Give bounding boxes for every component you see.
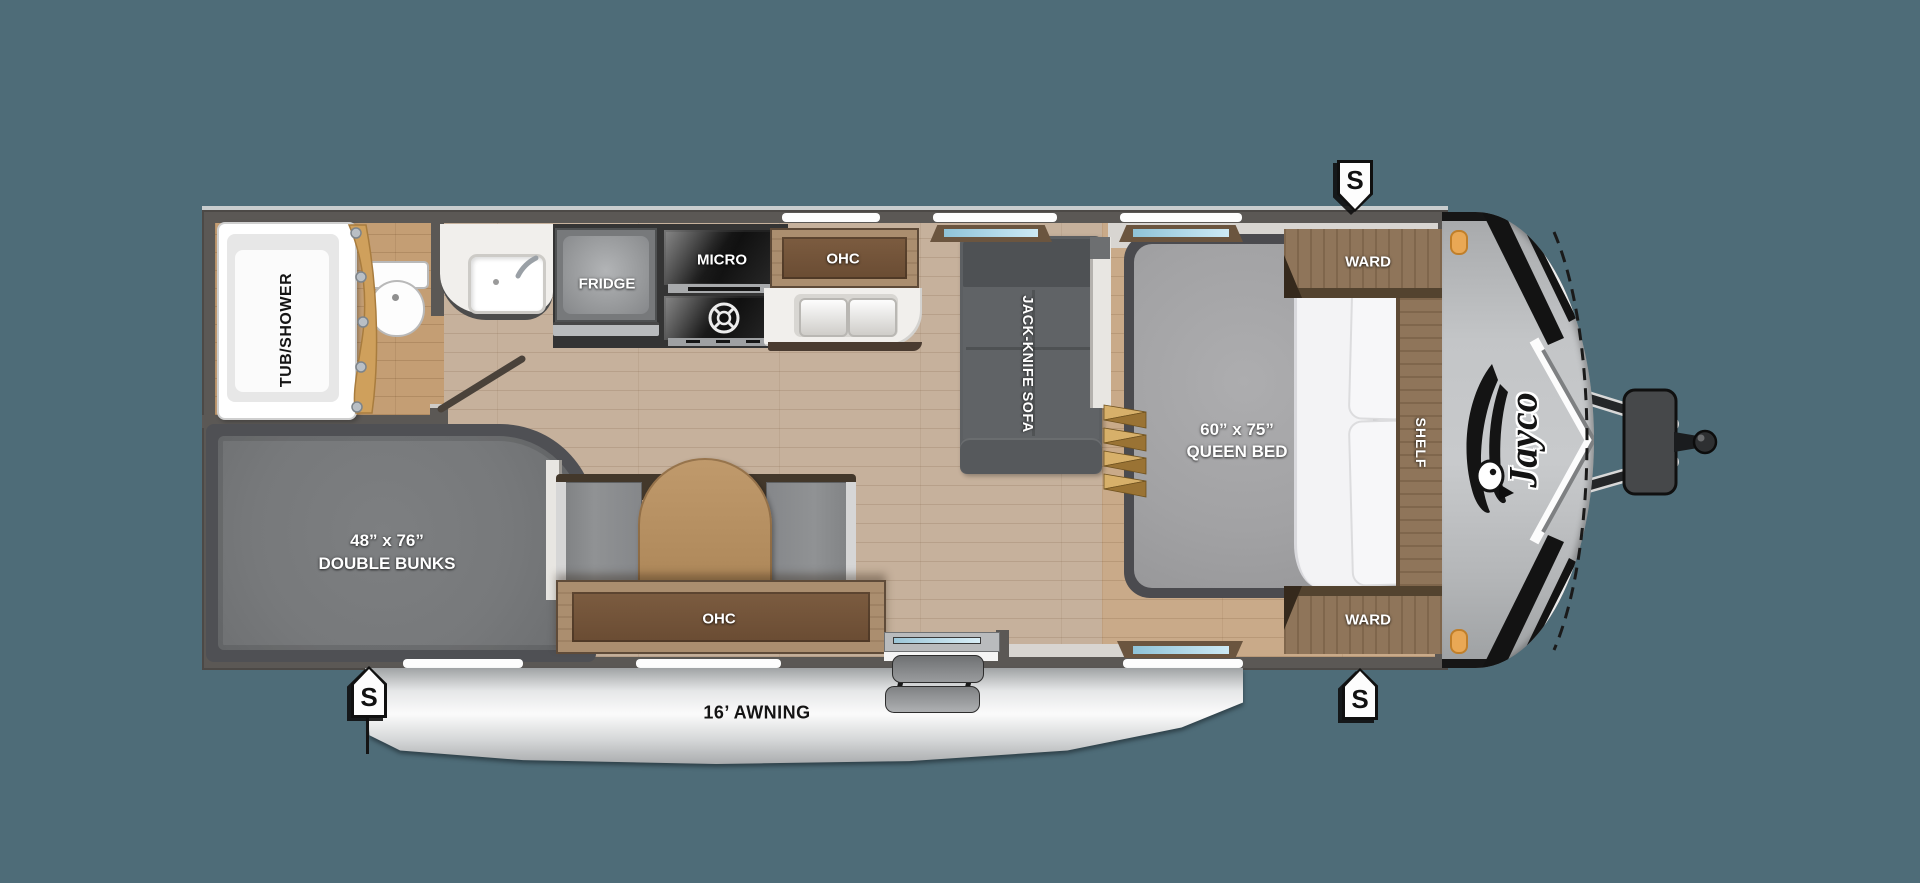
speaker-marker-bottom-right: S — [1342, 668, 1378, 720]
speaker-marker-bottom-left: S — [351, 666, 387, 718]
speaker-marker-left-stem — [366, 716, 369, 754]
brand-logo: Jayco — [1500, 392, 1547, 488]
marker-light-top — [1450, 230, 1468, 255]
nose-dashed-seam — [1546, 212, 1626, 670]
speaker-marker-bottom-left-label: S — [351, 682, 387, 713]
hitch-ball — [1694, 431, 1716, 453]
range-burner — [710, 304, 738, 332]
awning-label: 16’ AWNING — [703, 703, 810, 724]
speaker-marker-top: S — [1337, 160, 1373, 212]
rv-floorplan: TUB/SHOWER FRIDGE MICRO OHC — [0, 0, 1920, 883]
entry-step-1 — [892, 655, 984, 683]
bathroom-door-leaf — [441, 359, 522, 409]
vanity-faucet — [518, 258, 536, 276]
speaker-marker-bottom-right-label: S — [1342, 684, 1378, 715]
marker-light-bottom — [1450, 629, 1468, 654]
bed-steps-icon — [1104, 405, 1146, 497]
speaker-marker-top-label: S — [1337, 165, 1373, 196]
propane-cover — [1624, 390, 1676, 494]
entry-step-2 — [885, 686, 980, 713]
